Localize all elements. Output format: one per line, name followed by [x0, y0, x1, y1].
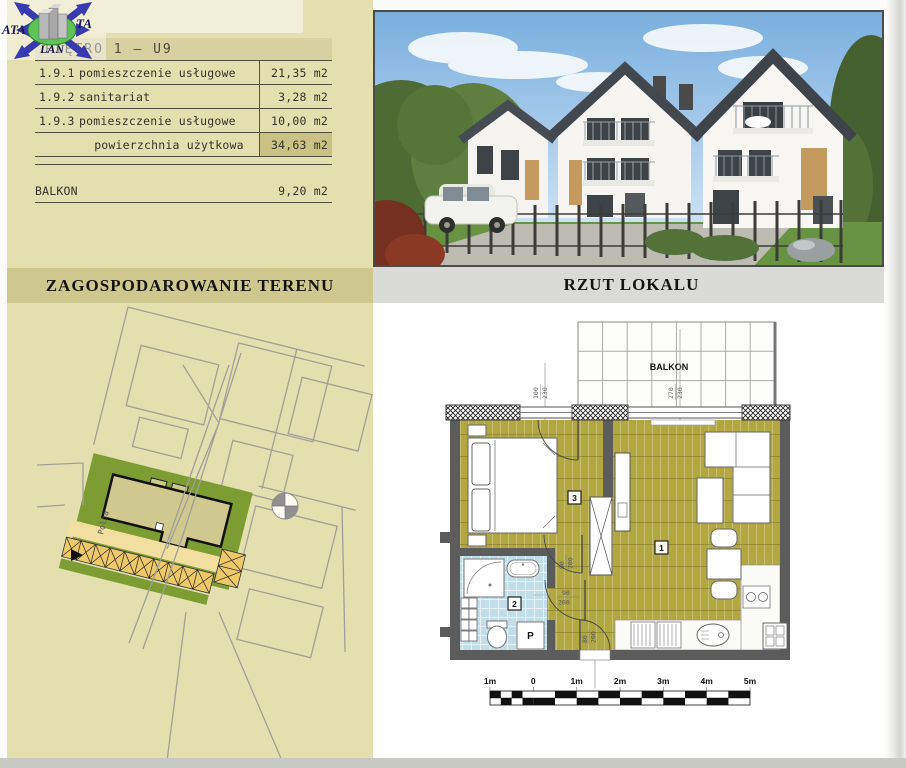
table-row: 1.9.2 sanitariat 3,28 m2 — [35, 85, 332, 109]
scale-label-2: 1m — [571, 676, 584, 686]
row-name: pomieszczenie usługowe — [79, 61, 259, 84]
agency-logo: ATA TA LAN — [0, 0, 106, 60]
table-total-row: powierzchnia użytkowa 34,63 m2 — [35, 133, 332, 157]
washing-machine: P — [517, 622, 544, 649]
window-dim-2-h: 230 — [676, 387, 684, 399]
door-dim-3-w: 80 — [581, 635, 589, 643]
table-row: 1.9.3 pomieszczenie usługowe 10,00 m2 — [35, 109, 332, 133]
section-header-plan: RZUT LOKALU — [373, 267, 890, 303]
page-edge — [884, 0, 906, 768]
door-dim-3-h: 200 — [590, 631, 598, 643]
toilet — [487, 621, 507, 648]
balcony-label: BALKON — [650, 362, 689, 372]
scale-bar: 1m 0 1m 2m 3m 4m 5m — [484, 676, 757, 705]
double-rule — [35, 157, 332, 165]
row-name: pomieszczenie usługowe — [79, 109, 259, 132]
total-area: 34,63 m2 — [259, 133, 332, 156]
door-dim-1-h: 200 — [567, 557, 575, 569]
rock-highlight — [793, 240, 815, 250]
scale-label-0: 1m — [484, 676, 497, 686]
floor-plan-drawing: BALKON 100 230 270 230 — [373, 303, 884, 758]
window-dim-1-h: 230 — [541, 387, 549, 399]
logo-buildings-icon — [39, 4, 67, 39]
row-area: 3,28 m2 — [259, 85, 332, 108]
section-title-site: ZAGOSPODAROWANIE TERENU — [46, 276, 335, 296]
tall-cabinet — [615, 453, 630, 531]
row-name: sanitariat — [79, 85, 259, 108]
washbasin — [507, 560, 539, 577]
row-number: 1.9.2 — [35, 85, 79, 108]
scale-label-6: 5m — [744, 676, 757, 686]
balcony-area: 9,20 m2 — [238, 184, 332, 198]
window-dim-1: 100 230 — [532, 384, 549, 400]
scale-label-5: 4m — [701, 676, 714, 686]
room-label-1: 1 — [659, 543, 664, 553]
door-dim-2-h: 200 — [558, 599, 570, 607]
entrance-threshold — [580, 650, 610, 660]
site-cluster — [19, 306, 373, 758]
room-label-3: 3 — [572, 493, 577, 503]
building-photo — [373, 10, 884, 267]
window-dim-1-w: 100 — [532, 387, 540, 399]
door-dim-1-w: 90 — [558, 561, 566, 569]
row-number: 1.9.3 — [35, 109, 79, 132]
row-area: 21,35 m2 — [259, 61, 332, 84]
scale-label-4: 3m — [657, 676, 670, 686]
logo-text-left: ATA — [1, 22, 26, 37]
balcony-name: BALKON — [35, 184, 238, 198]
section-header-site: ZAGOSPODAROWANIE TERENU — [7, 268, 373, 303]
washer-label: P — [527, 631, 534, 642]
row-area: 10,00 m2 — [259, 109, 332, 132]
site-plan-drawing: Polna — [7, 303, 373, 758]
logo-text-bottom: LAN — [39, 42, 65, 56]
scale-label-1: 0 — [531, 676, 536, 686]
wardrobe — [590, 497, 612, 575]
fridge — [763, 623, 787, 649]
row-number — [35, 133, 79, 156]
room-label-2: 2 — [512, 599, 517, 609]
window-sill-inner — [651, 420, 715, 425]
coffee-table — [697, 478, 723, 523]
logo-text-right: TA — [76, 16, 92, 31]
total-name: powierzchnia użytkowa — [79, 133, 259, 156]
window-dim-2-w: 270 — [667, 387, 675, 399]
floor-plan-panel: BALKON 100 230 270 230 — [373, 303, 884, 758]
site-plan-panel: Polna — [7, 303, 373, 758]
scale-label-3: 2m — [614, 676, 627, 686]
section-title-plan: RZUT LOKALU — [564, 275, 700, 295]
page-bottom-edge — [0, 758, 906, 768]
shower — [464, 559, 504, 597]
area-table-rows: 1.9.1 pomieszczenie usługowe 21,35 m2 1.… — [35, 60, 332, 157]
door-dim-2-w: 90 — [562, 589, 570, 597]
table-row: 1.9.1 pomieszczenie usługowe 21,35 m2 — [35, 61, 332, 85]
area-table: PIĘTRO 1 – U9 1.9.1 pomieszczenie usługo… — [35, 38, 332, 203]
balcony-row: BALKON 9,20 m2 — [35, 180, 332, 203]
row-number: 1.9.1 — [35, 61, 79, 84]
compass-icon — [272, 493, 298, 519]
listing-page: Polna ZAGOSPODAROWANIE TERENU RZUT LOKAL… — [0, 0, 906, 768]
dining-set — [707, 529, 741, 599]
bed — [468, 425, 557, 546]
windows — [520, 407, 742, 418]
